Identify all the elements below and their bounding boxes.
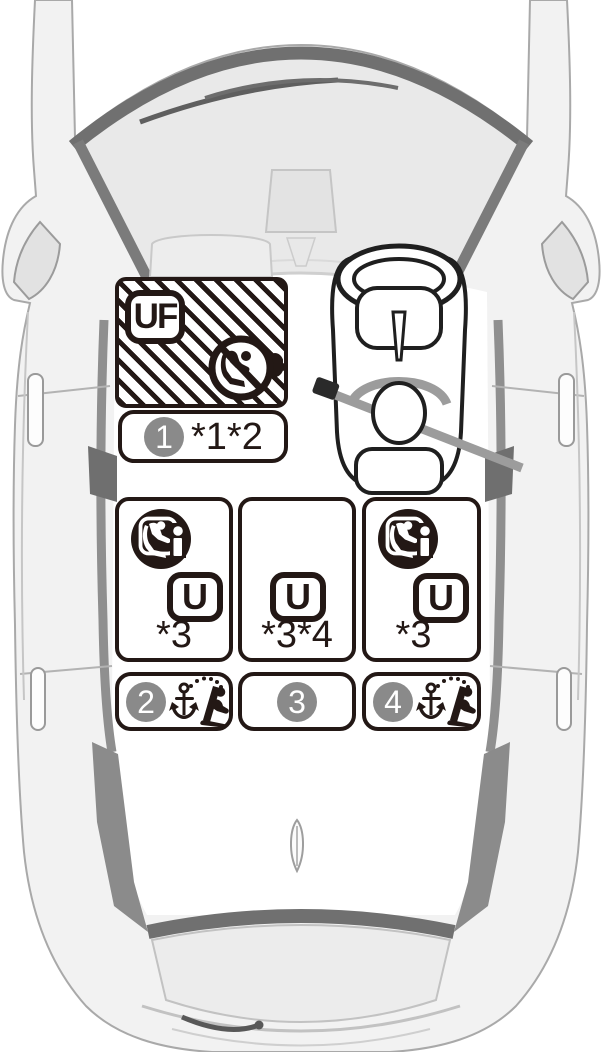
rear-glass bbox=[152, 925, 450, 1022]
position-number: 4 bbox=[384, 686, 402, 718]
driver-head bbox=[373, 383, 425, 443]
driver-seat-cushion bbox=[356, 449, 442, 493]
position-number: 1 bbox=[155, 421, 173, 453]
seat-code-text: UF bbox=[134, 297, 177, 337]
footnote-text: *3 bbox=[119, 616, 229, 654]
i-size-ready-icon bbox=[377, 508, 439, 570]
seat-rating-text: U bbox=[428, 577, 454, 619]
position-number-circle: 2 bbox=[126, 682, 166, 722]
position-number: 3 bbox=[288, 686, 306, 718]
top-tether-anchor-icon bbox=[416, 676, 476, 728]
seat-rating-text: U bbox=[182, 576, 208, 618]
position-4-badge: 4 bbox=[362, 672, 481, 731]
no-rearward-facing-child-seat-airbag-icon bbox=[205, 330, 283, 404]
position-number: 2 bbox=[137, 686, 155, 718]
front-passenger-no-child-seat-area: UF bbox=[115, 277, 288, 408]
i-size-ready-icon bbox=[130, 508, 192, 570]
rear-center-seat-box: U *3*4 bbox=[238, 497, 356, 662]
top-tether-anchor-icon bbox=[169, 676, 229, 728]
position-number-circle: 1 bbox=[144, 417, 184, 457]
position-1-badge: 1 *1*2 bbox=[118, 410, 288, 463]
center-display bbox=[266, 170, 336, 232]
rear-right-seat-box: U *3 bbox=[362, 497, 481, 662]
position-2-badge: 2 bbox=[115, 672, 233, 731]
passenger-seat-top bbox=[150, 235, 272, 277]
footnote-text: *1*2 bbox=[191, 418, 263, 456]
position-number-circle: 4 bbox=[373, 682, 413, 722]
child-seat-position-diagram: UF 1 *1*2 U *3 bbox=[0, 0, 602, 1052]
seat-rating-text: U bbox=[285, 576, 311, 618]
position-number-circle: 3 bbox=[277, 682, 317, 722]
footnote-text: *3 bbox=[366, 616, 477, 654]
position-3-badge: 3 bbox=[238, 672, 356, 731]
footnote-text: *3*4 bbox=[242, 616, 352, 654]
seat-code-label: UF bbox=[125, 290, 185, 344]
rear-left-seat-box: U *3 bbox=[115, 497, 233, 662]
